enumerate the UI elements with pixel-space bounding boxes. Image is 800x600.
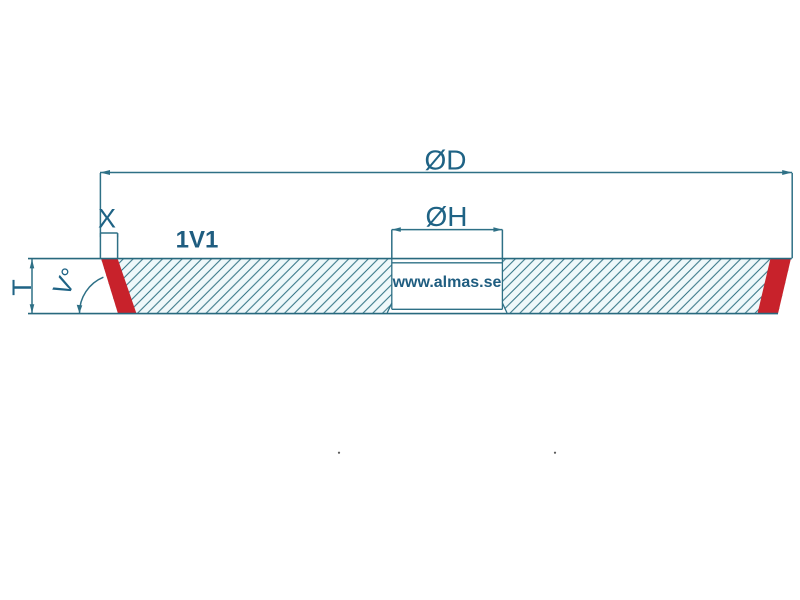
artifact-dot-right [554, 452, 556, 454]
watermark-text: www.almas.se [392, 274, 502, 291]
technical-drawing: ØD ØH X T V° [0, 0, 800, 600]
wheel-cross-section-canvas: ØD ØH X T V° [0, 0, 800, 600]
label-outer-diameter: ØD [425, 145, 467, 176]
label-wheel-type: 1V1 [176, 227, 219, 254]
dimension-hole-diameter: ØH [392, 201, 503, 258]
label-thickness: T [7, 279, 37, 296]
dimension-thickness: T [7, 259, 37, 313]
dimension-bevel-angle: V° [48, 264, 104, 314]
angle-arc [79, 277, 103, 313]
label-hole-diameter: ØH [426, 201, 468, 232]
artifact-dot-left [338, 452, 340, 454]
label-segment-depth: X [98, 204, 116, 234]
label-bevel-angle: V° [48, 264, 85, 300]
